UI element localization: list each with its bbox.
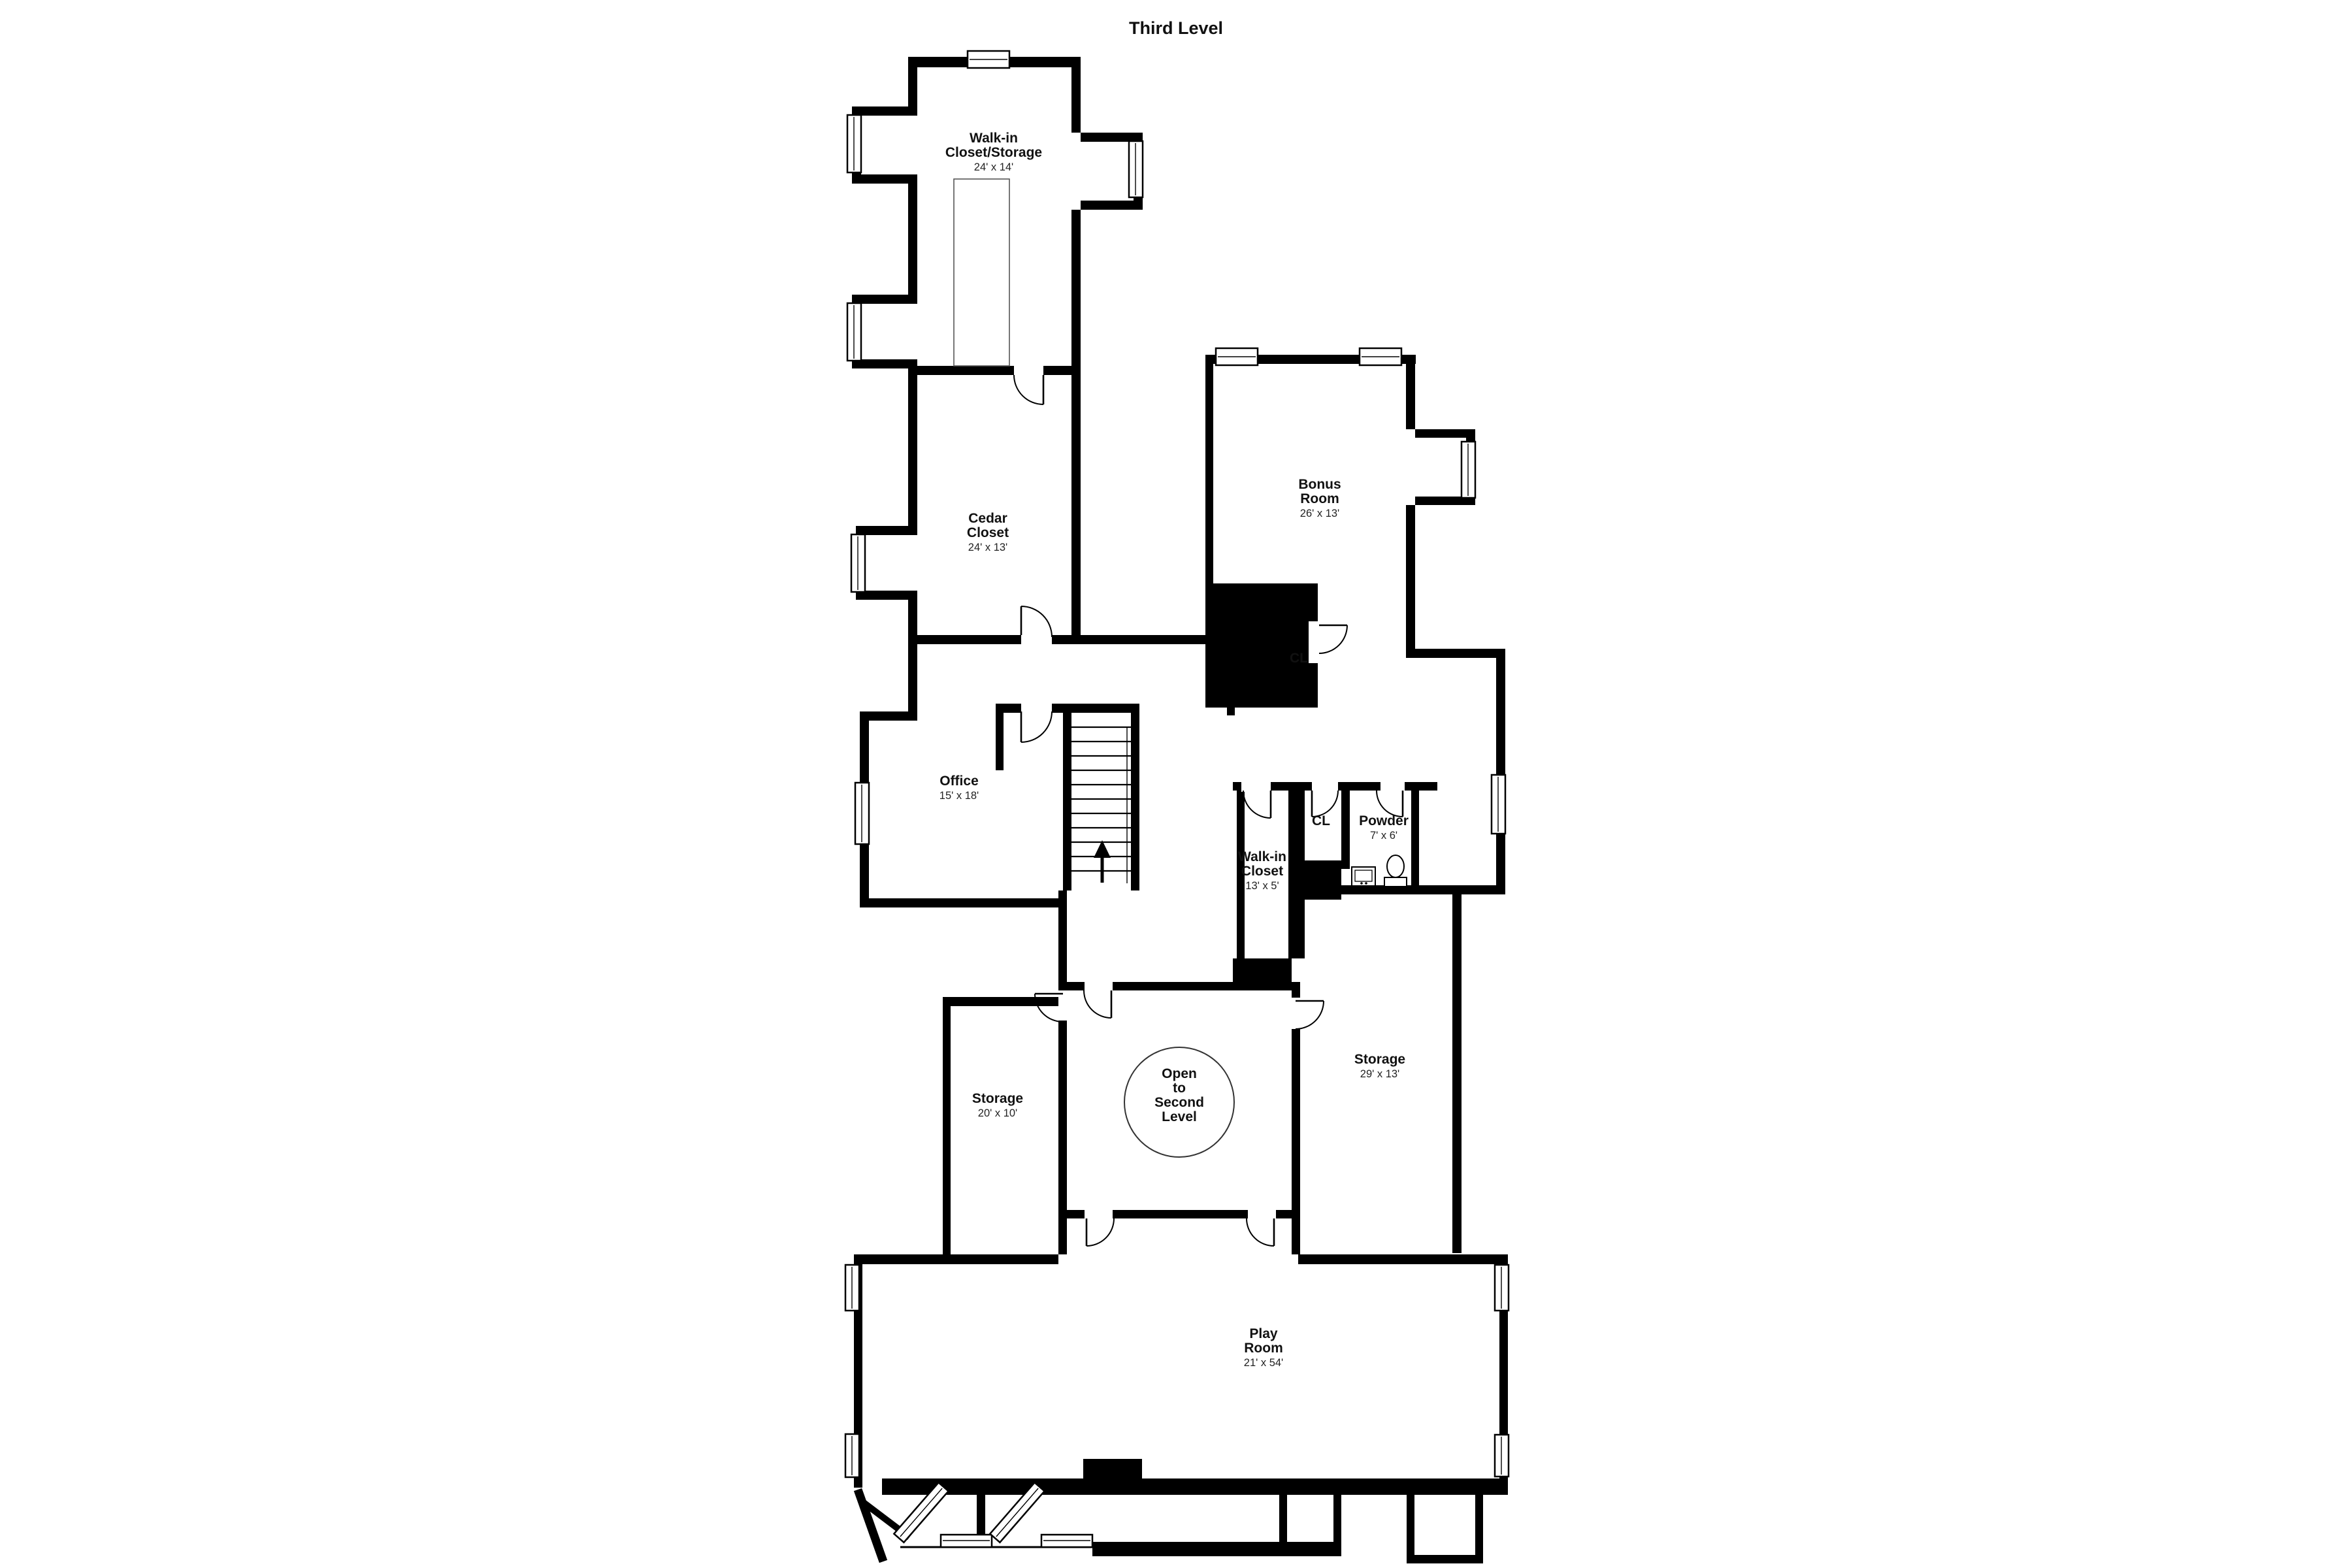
window-glyph [1216,348,1258,365]
window-glyph [1129,141,1143,197]
window-glyph [1492,775,1505,834]
door-swing-glyph [1247,1218,1274,1246]
room-label-walk-in-closet-storage: Walk-in Closet/Storage 24' x 14' [945,131,1042,173]
room-label-storage-29: Storage 29' x 13' [1354,1052,1405,1080]
room-dims: 26' x 13' [1300,508,1339,519]
window-glyph [847,115,861,172]
room-name: Powder [1359,813,1409,828]
room-name: Office [939,774,979,789]
door-swing-glyph [1319,625,1347,653]
room-name: Closet/Storage [945,145,1042,160]
room-name: Room [1244,1341,1283,1356]
room-label-powder: Powder 7' x 6' [1359,813,1409,841]
door-swing-glyph [1312,791,1338,817]
room-name: Second [1154,1095,1204,1110]
storage-unit-outline [954,179,1009,366]
room-dims: 15' x 18' [939,790,979,802]
room-dims: 13' x 5' [1245,880,1279,892]
window-glyph [851,534,865,592]
window-glyph [1360,348,1401,365]
fireplace [1083,1459,1142,1478]
room-label-walk-in-closet: Walk-in Closet 13' x 5' [1238,849,1286,892]
door-swing-glyph [1021,606,1052,637]
room-label-play-room: Play Room 21' x 54' [1244,1326,1283,1369]
room-dims: 24' x 14' [974,161,1013,173]
powder-fixtures [1352,855,1407,887]
walls [852,57,1508,1563]
room-name: Storage [972,1091,1023,1106]
room-name: Closet [967,525,1009,540]
room-dims: 7' x 6' [1370,830,1397,841]
room-label-closet-powder: CL [1312,813,1330,828]
window-glyph [941,1535,992,1547]
room-name: Cedar [968,511,1007,526]
room-label-open-to-second-level: Open to Second Level [1154,1066,1204,1124]
room-name: Play [1249,1326,1278,1341]
room-name: Level [1162,1109,1197,1124]
door-swing-glyph [1021,711,1052,742]
room-name: to [1173,1081,1186,1096]
room-label-cedar-closet: Cedar Closet 24' x 13' [967,511,1009,553]
window-glyph [1041,1535,1092,1547]
room-name: CL [1290,651,1308,666]
room-dims: 21' x 54' [1244,1357,1283,1369]
room-label-office: Office 15' x 18' [939,774,979,802]
floor-plan: Third Level Walk-in Closet/Storage 24' x… [0,0,2352,1568]
window-glyph [855,783,869,844]
door-swing-glyph [1014,375,1043,404]
room-name: CL [1312,813,1330,828]
room-name: Bonus [1298,477,1341,492]
door-swing-glyph [1086,1218,1114,1246]
room-dims: 20' x 10' [978,1107,1017,1119]
door-swing-glyph [1377,791,1403,817]
room-label-bonus-room: Bonus Room 26' x 13' [1298,477,1341,519]
window-glyph [1495,1435,1509,1477]
room-name: Walk-in [970,131,1018,146]
window-glyph [845,1434,859,1477]
door-swing-glyph [1243,791,1271,818]
window-glyph [1495,1265,1509,1311]
room-name: Closet [1241,864,1283,879]
window-glyph [1462,442,1475,498]
toilet-icon [1384,855,1407,887]
window-glyph [968,51,1009,68]
page-title: Third Level [1129,18,1223,38]
window-glyph [847,303,861,361]
room-name: Storage [1354,1052,1405,1067]
sink-icon [1352,867,1375,886]
room-label-storage-20: Storage 20' x 10' [972,1091,1023,1119]
angled-wall [858,1490,883,1561]
staircase [1071,727,1131,883]
window-glyph [845,1265,859,1311]
room-dims: 29' x 13' [1360,1068,1399,1080]
room-name: Walk-in [1238,849,1286,864]
room-label-closet-bonus: CL [1290,651,1308,666]
room-dims: 24' x 13' [968,542,1007,553]
door-swing-glyph [1084,990,1111,1018]
room-name: Room [1300,491,1339,506]
room-name: Open [1162,1066,1197,1081]
up-arrow-icon [1094,840,1111,883]
